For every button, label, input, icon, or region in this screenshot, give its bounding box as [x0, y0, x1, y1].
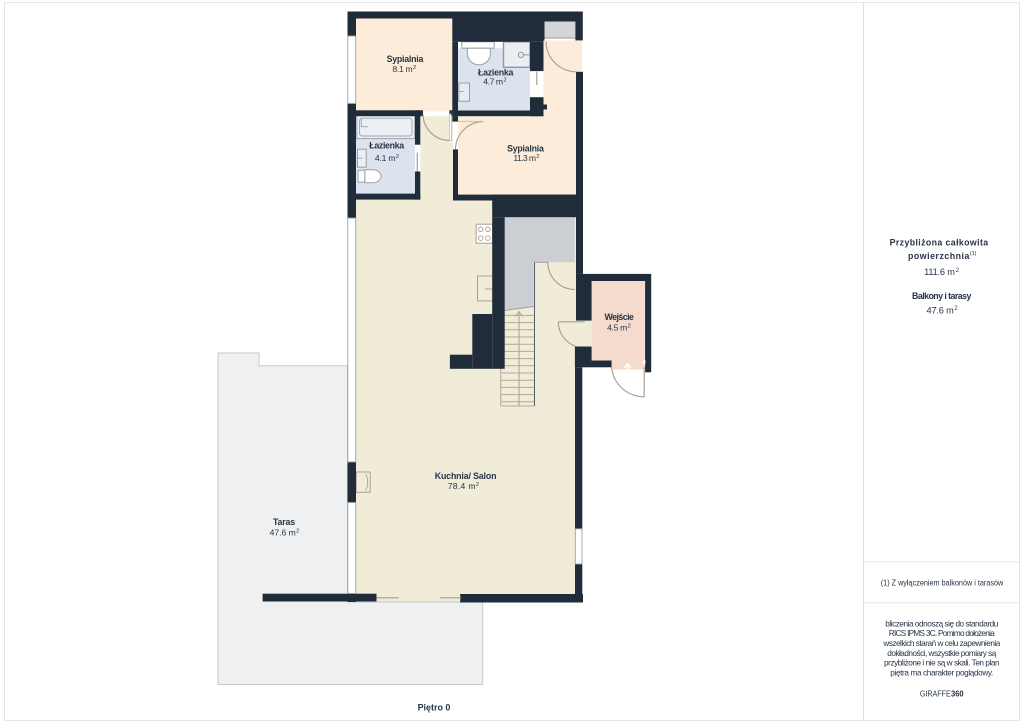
svg-text:47.6 m: 47.6 m [270, 527, 296, 537]
svg-text:Sypialnia: Sypialnia [387, 54, 424, 64]
svg-text:111.6 m: 111.6 m [924, 267, 955, 277]
svg-text:Łazienka: Łazienka [369, 141, 404, 151]
svg-text:4.1 m: 4.1 m [375, 153, 396, 163]
svg-text:2: 2 [396, 154, 399, 160]
svg-text:Balkony i tarasy: Balkony i tarasy [912, 291, 971, 301]
svg-text:Wejście: Wejście [605, 312, 634, 322]
svg-text:360: 360 [951, 689, 964, 699]
svg-text:RICS IPMS 3C. Pomimo dołożenia: RICS IPMS 3C. Pomimo dołożenia [889, 629, 995, 638]
svg-text:2: 2 [503, 78, 506, 84]
svg-text:78.4 m: 78.4 m [448, 481, 476, 491]
svg-text:2: 2 [413, 65, 416, 71]
svg-text:2: 2 [296, 528, 299, 534]
svg-text:2: 2 [536, 154, 539, 160]
svg-text:(1) Z wyłączeniem balkonów i t: (1) Z wyłączeniem balkonów i tarasów [881, 578, 1004, 588]
svg-text:dokładności, wszystkie pomiary: dokładności, wszystkie pomiary są [887, 649, 996, 658]
svg-text:11.3 m: 11.3 m [513, 153, 536, 163]
svg-text:47.6 m: 47.6 m [927, 306, 955, 316]
svg-text:8.1 m: 8.1 m [392, 64, 412, 74]
svg-text:2: 2 [628, 324, 631, 330]
svg-text:Taras: Taras [273, 517, 295, 527]
svg-text:GIRAFFE: GIRAFFE [920, 689, 951, 699]
svg-text:przybliżone i nie są w skali.: przybliżone i nie są w skali. Ten plan [884, 659, 1000, 668]
svg-text:wszelkich starań w celu zapewn: wszelkich starań w celu zapewnienia [882, 639, 1000, 648]
svg-text:Piętro 0: Piętro 0 [418, 702, 451, 713]
svg-text:Kuchnia/ Salon: Kuchnia/ Salon [435, 471, 497, 481]
svg-text:powierzchnia: powierzchnia [908, 251, 969, 261]
svg-text:4.5 m: 4.5 m [607, 323, 627, 333]
svg-text:bliczenia odnoszą się do stand: bliczenia odnoszą się do standardu [885, 619, 998, 628]
svg-text:Przybliżona całkowita: Przybliżona całkowita [890, 238, 989, 248]
svg-text:(1): (1) [970, 251, 977, 257]
svg-text:2: 2 [476, 482, 479, 488]
svg-text:piętra ma charakter poglądowy.: piętra ma charakter poglądowy. [890, 669, 993, 678]
svg-text:4.7 m: 4.7 m [483, 77, 503, 87]
